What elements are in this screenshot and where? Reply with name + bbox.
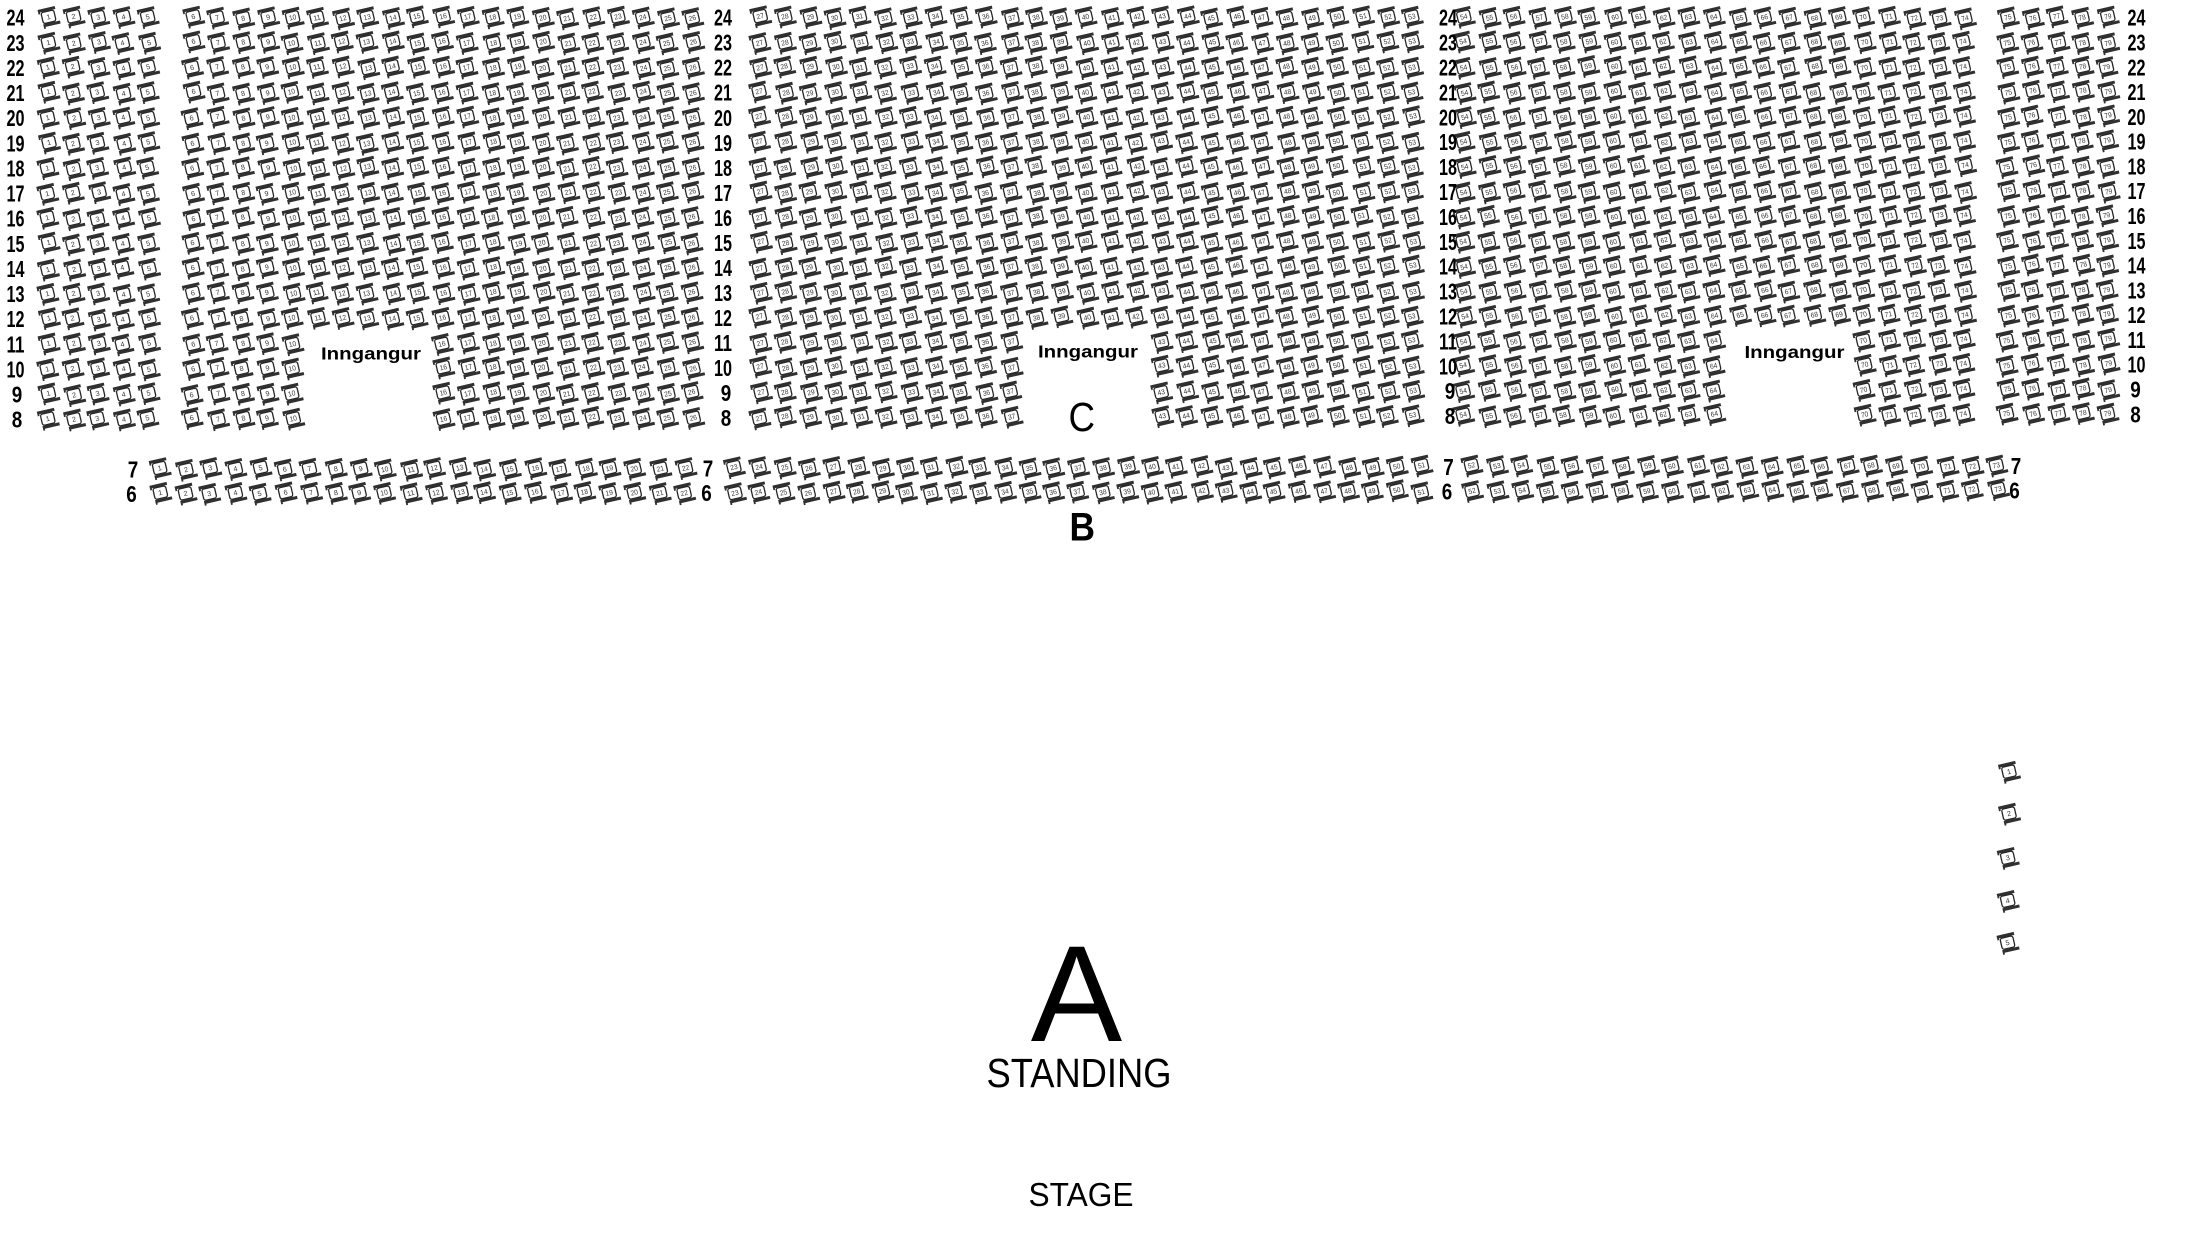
svg-text:16: 16: [714, 205, 732, 231]
svg-text:17: 17: [1439, 179, 1457, 205]
svg-text:23: 23: [2128, 30, 2146, 56]
svg-text:20: 20: [714, 105, 732, 131]
svg-text:Inngangur: Inngangur: [1038, 341, 1138, 361]
svg-text:10: 10: [1439, 353, 1457, 379]
svg-text:18: 18: [1439, 154, 1457, 180]
svg-text:18: 18: [2128, 153, 2146, 179]
svg-text:17: 17: [7, 181, 25, 207]
svg-text:12: 12: [7, 306, 25, 332]
svg-text:6: 6: [2009, 477, 2020, 503]
svg-text:13: 13: [714, 280, 732, 306]
svg-text:14: 14: [2128, 253, 2146, 279]
svg-text:20: 20: [1439, 104, 1457, 130]
svg-text:11: 11: [714, 330, 732, 356]
svg-text:23: 23: [7, 30, 25, 56]
svg-text:Inngangur: Inngangur: [321, 343, 421, 363]
svg-text:18: 18: [7, 156, 25, 182]
svg-text:13: 13: [7, 281, 25, 307]
svg-text:17: 17: [714, 180, 732, 206]
svg-text:6: 6: [701, 480, 712, 506]
svg-text:13: 13: [2128, 277, 2146, 303]
svg-text:17: 17: [2128, 178, 2146, 204]
svg-text:C: C: [1069, 394, 1096, 440]
svg-text:21: 21: [7, 80, 25, 106]
svg-text:19: 19: [7, 130, 25, 156]
svg-text:21: 21: [2128, 79, 2146, 105]
svg-text:15: 15: [714, 230, 732, 256]
svg-text:21: 21: [1439, 79, 1457, 105]
svg-text:14: 14: [7, 256, 25, 282]
svg-text:16: 16: [1439, 204, 1457, 230]
svg-text:9: 9: [721, 380, 732, 406]
svg-text:6: 6: [126, 481, 137, 507]
svg-text:9: 9: [2130, 377, 2141, 403]
svg-text:12: 12: [714, 305, 732, 331]
svg-text:11: 11: [1439, 328, 1457, 354]
svg-text:STANDING: STANDING: [987, 1050, 1172, 1096]
svg-text:20: 20: [2128, 104, 2146, 130]
svg-text:21: 21: [714, 80, 732, 106]
svg-text:23: 23: [714, 30, 732, 56]
svg-text:7: 7: [1443, 454, 1454, 480]
svg-text:11: 11: [2128, 327, 2146, 353]
svg-text:14: 14: [1439, 254, 1457, 280]
svg-text:24: 24: [7, 5, 25, 31]
svg-text:19: 19: [1439, 129, 1457, 155]
svg-text:10: 10: [2128, 352, 2146, 378]
svg-text:B: B: [1069, 506, 1095, 550]
svg-text:20: 20: [7, 105, 25, 131]
svg-text:A: A: [1031, 918, 1123, 1071]
svg-text:12: 12: [1439, 304, 1457, 330]
svg-text:22: 22: [2128, 54, 2146, 80]
svg-text:24: 24: [1439, 5, 1457, 31]
svg-text:22: 22: [1439, 55, 1457, 81]
svg-text:16: 16: [7, 206, 25, 232]
svg-text:23: 23: [1439, 30, 1457, 56]
svg-text:22: 22: [7, 55, 25, 81]
svg-text:24: 24: [2128, 5, 2146, 31]
svg-text:15: 15: [2128, 228, 2146, 254]
svg-text:8: 8: [721, 405, 732, 431]
svg-text:STAGE: STAGE: [1029, 1177, 1134, 1214]
svg-text:13: 13: [1439, 279, 1457, 305]
svg-text:Inngangur: Inngangur: [1745, 342, 1845, 362]
svg-text:18: 18: [714, 155, 732, 181]
svg-text:6: 6: [1442, 478, 1453, 504]
svg-text:12: 12: [2128, 302, 2146, 328]
svg-text:8: 8: [2130, 401, 2141, 427]
svg-text:8: 8: [12, 407, 23, 433]
svg-text:16: 16: [2128, 203, 2146, 229]
svg-text:9: 9: [12, 382, 23, 408]
svg-text:10: 10: [714, 355, 732, 381]
svg-text:22: 22: [714, 55, 732, 81]
svg-text:7: 7: [2011, 453, 2022, 479]
svg-text:15: 15: [7, 231, 25, 257]
svg-text:14: 14: [714, 255, 732, 281]
svg-text:19: 19: [2128, 129, 2146, 155]
svg-text:10: 10: [7, 357, 25, 383]
svg-text:19: 19: [714, 130, 732, 156]
svg-text:24: 24: [714, 5, 732, 31]
svg-text:7: 7: [703, 455, 714, 481]
svg-text:8: 8: [1445, 403, 1456, 429]
svg-text:15: 15: [1439, 229, 1457, 255]
svg-text:11: 11: [7, 331, 25, 357]
svg-text:9: 9: [1445, 378, 1456, 404]
svg-text:7: 7: [128, 457, 139, 483]
